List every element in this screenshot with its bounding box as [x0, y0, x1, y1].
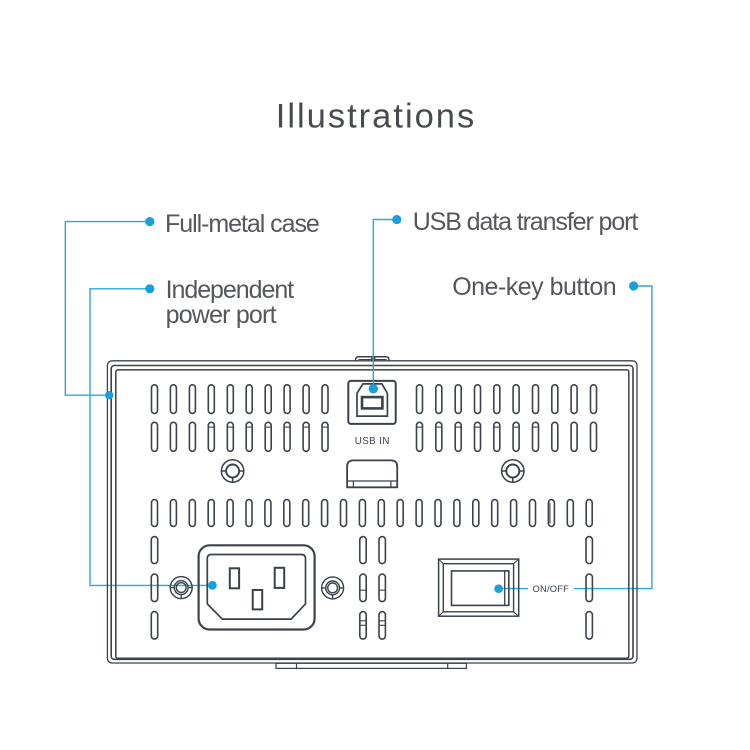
svg-text:power port: power port: [166, 301, 277, 329]
svg-text:USB IN: USB IN: [355, 436, 390, 447]
svg-text:ON/OFF: ON/OFF: [532, 583, 569, 594]
svg-text:Illustrations: Illustrations: [276, 98, 477, 136]
svg-text:One-key button: One-key button: [452, 273, 616, 301]
svg-text:Full-metal case: Full-metal case: [165, 210, 319, 238]
svg-text:Independent: Independent: [166, 276, 295, 304]
svg-text:USB data transfer port: USB data transfer port: [413, 208, 639, 236]
